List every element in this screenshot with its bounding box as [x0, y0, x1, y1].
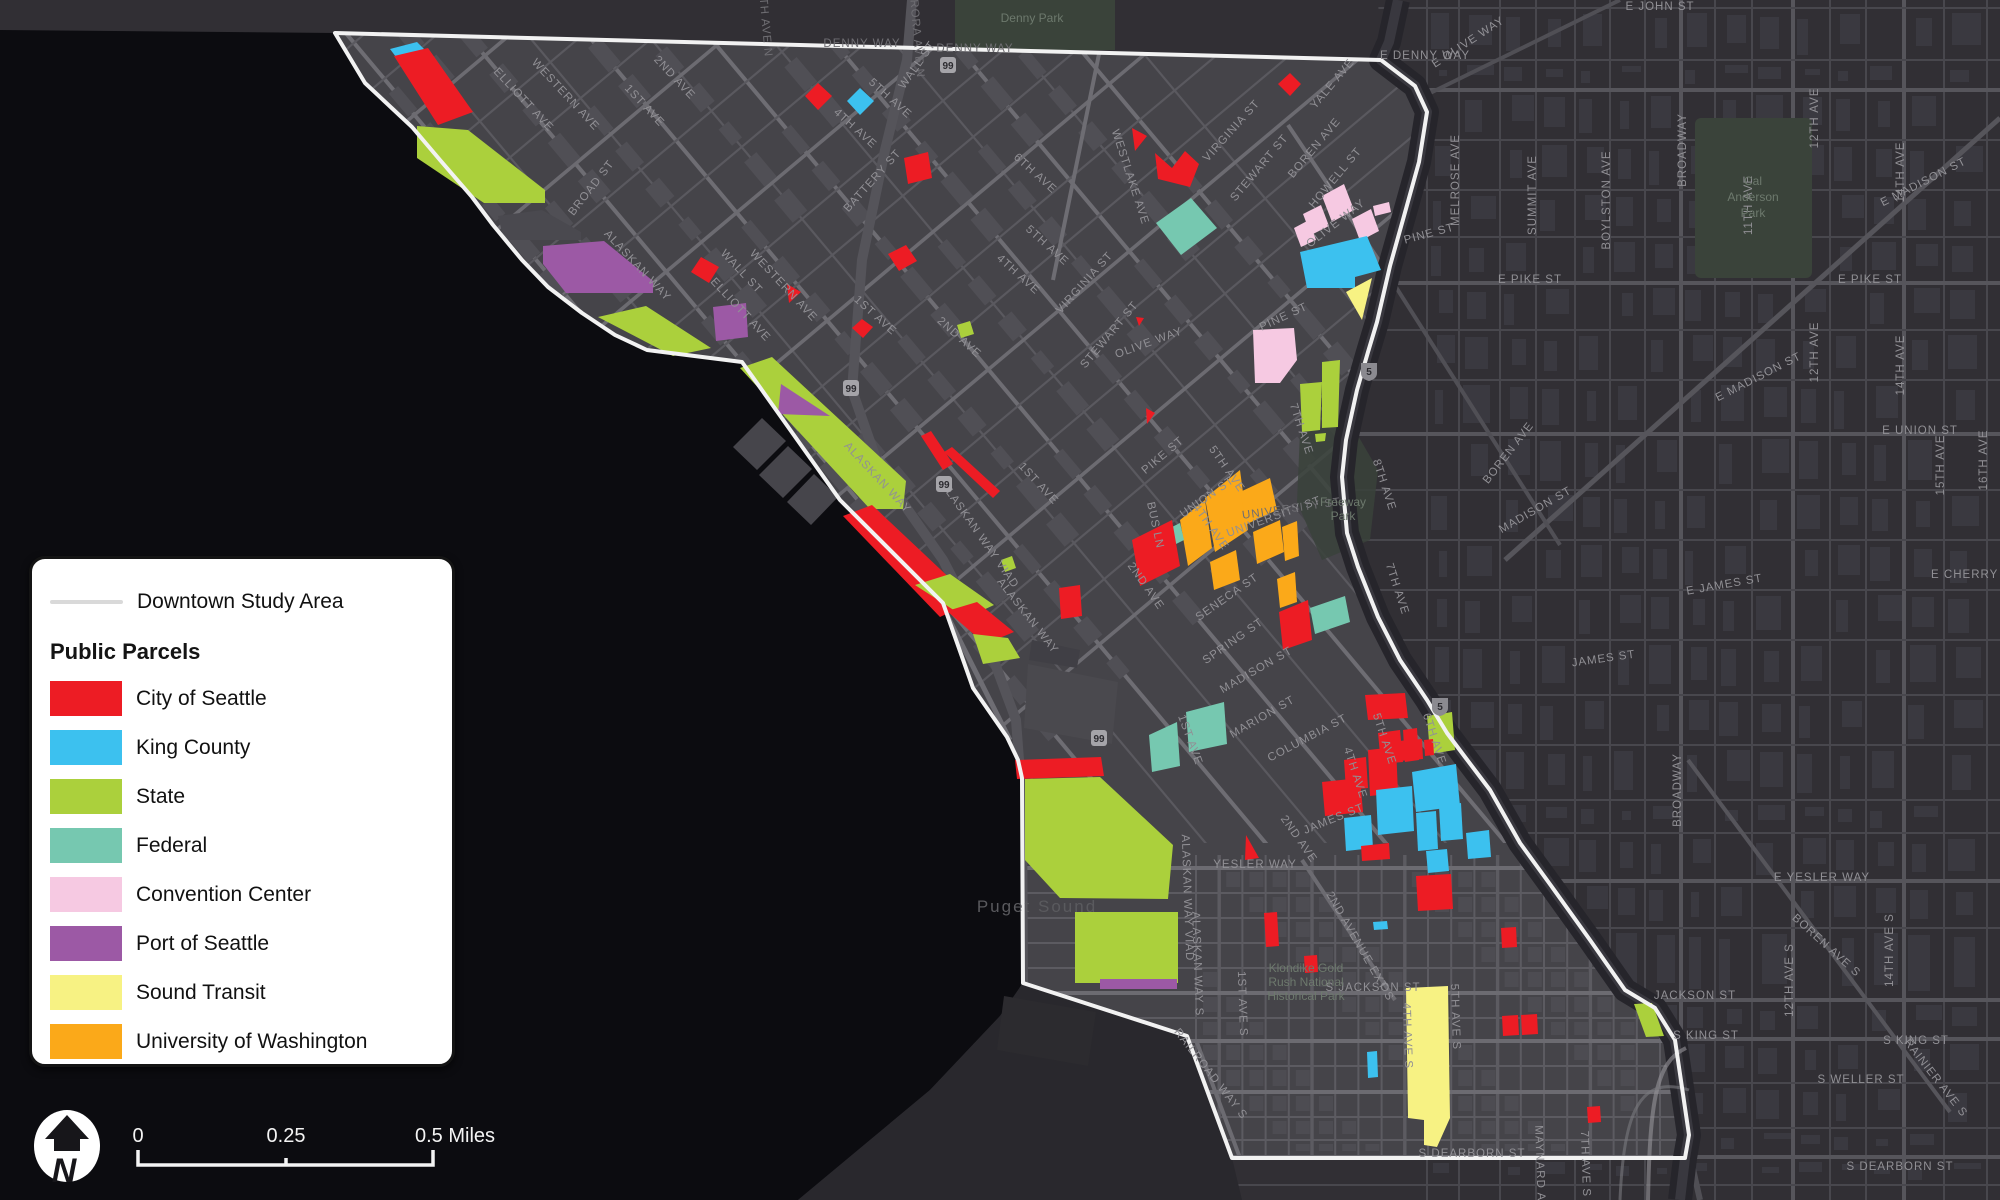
legend-items: City of SeattleKing CountyStateFederalCo… [50, 674, 436, 1066]
park-label: Park [1741, 206, 1767, 220]
interstate-5-shield-icon: 5 [1432, 698, 1448, 716]
legend-swatch-kc [50, 730, 122, 765]
svg-text:0.5 Miles: 0.5 Miles [415, 1125, 495, 1147]
street-label: 7TH AVE S [1578, 1131, 1592, 1198]
park-label: Anderson [1727, 190, 1778, 204]
legend-item-cc: Convention Center [50, 870, 436, 919]
street-label: E YESLER WAY [1774, 872, 1870, 884]
street-label: S DEARBORN ST [1847, 1161, 1954, 1173]
parcel-kc[interactable] [1426, 849, 1449, 873]
legend-swatch-st [50, 779, 122, 814]
street-label: DENNY WAY [936, 43, 1013, 55]
parcel-city[interactable] [1361, 843, 1390, 861]
street-label: 15TH AVE [1935, 435, 1947, 496]
street-label: 1ST AVE S [1235, 971, 1249, 1037]
legend-swatch-city [50, 681, 122, 716]
legend-item-port: Port of Seattle [50, 919, 436, 968]
street-label: 14TH AVE [1895, 335, 1907, 396]
svg-text:5: 5 [1437, 702, 1443, 713]
parcel-kc[interactable] [1439, 803, 1463, 841]
study-area-line-swatch [50, 600, 123, 604]
park-label: Denny Park [1001, 11, 1065, 25]
legend-item-label: Convention Center [136, 883, 311, 907]
street-label: S WELLER ST [1817, 1074, 1904, 1086]
street-label: 12TH AVE [1809, 88, 1821, 149]
parcel-kc[interactable] [1466, 830, 1491, 859]
legend-item-label: State [136, 785, 185, 809]
parcel-city[interactable] [1398, 739, 1423, 761]
legend-item-label: City of Seattle [136, 687, 267, 711]
scale-bar: 0 0.25 0.5 Miles [110, 1110, 670, 1190]
street-label: BROADWAY [1677, 113, 1689, 187]
street-label: E PIKE ST [1838, 274, 1902, 286]
street-label: E UNION ST [1882, 425, 1958, 437]
street-label: YESLER WAY [1213, 859, 1297, 871]
parcel-kc[interactable] [1416, 811, 1438, 851]
street-label: E JOHN ST [1625, 1, 1694, 13]
legend-item-stx: Sound Transit [50, 968, 436, 1017]
street-label: 16TH AVE [1978, 430, 1990, 491]
svg-text:99: 99 [1093, 734, 1105, 745]
sr-99-shield-icon: 99 [1091, 730, 1107, 746]
park-label: Rush National [1268, 975, 1343, 989]
parcel-st[interactable] [1315, 433, 1326, 442]
svg-text:0: 0 [132, 1125, 143, 1147]
parcel-city[interactable] [1015, 757, 1104, 779]
parcel-st[interactable] [1075, 912, 1178, 983]
legend-swatch-fed [50, 828, 122, 863]
legend-item-label: University of Washington [136, 1030, 367, 1054]
legend-item-kc: King County [50, 723, 436, 772]
street-label: S KING ST [1673, 1030, 1739, 1042]
study-area-label: Downtown Study Area [137, 590, 344, 614]
legend-swatch-stx [50, 975, 122, 1010]
legend-swatch-cc [50, 877, 122, 912]
street-label: E PIKE ST [1498, 274, 1562, 286]
parcel-st[interactable] [1322, 360, 1340, 428]
park-label: Cal [1744, 174, 1762, 188]
parcel-city[interactable] [1059, 585, 1082, 619]
svg-text:99: 99 [845, 384, 857, 395]
sr-99-shield-icon: 99 [936, 476, 952, 492]
street-label: 5TH AVE S [1448, 984, 1462, 1051]
legend-study-area-row: Downtown Study Area [50, 577, 436, 626]
legend-item-label: Sound Transit [136, 981, 266, 1005]
legend-panel: Downtown Study Area Public Parcels City … [29, 556, 455, 1067]
street-label: SUMMIT AVE [1527, 155, 1539, 235]
svg-text:5: 5 [1366, 367, 1372, 378]
street-label: MELROSE AVE [1450, 134, 1462, 226]
parcel-city[interactable] [1501, 927, 1517, 948]
parcel-city[interactable] [1587, 1106, 1601, 1123]
park-label: Freeway [1320, 495, 1366, 509]
interstate-5-shield-icon: 5 [1361, 363, 1377, 381]
legend-item-label: King County [136, 736, 250, 760]
parcel-city[interactable] [1416, 874, 1453, 911]
street-label: BOYLSTON AVE [1601, 150, 1613, 249]
legend-item-label: Port of Seattle [136, 932, 269, 956]
sr-99-shield-icon: 99 [843, 380, 859, 396]
sr-99-shield-icon: 99 [940, 57, 956, 73]
svg-text:0.25: 0.25 [267, 1125, 306, 1147]
park-label: Historical Park [1267, 989, 1345, 1003]
legend-header: Public Parcels [50, 632, 436, 672]
parcel-kc[interactable] [1373, 921, 1388, 930]
street-label: JACKSON ST [1654, 990, 1736, 1002]
street-label: 12TH AVE [1809, 322, 1821, 383]
parcel-city[interactable] [1502, 1015, 1519, 1036]
legend-item-label: Federal [136, 834, 207, 858]
street-label: 4TH AVE S [1400, 1003, 1414, 1070]
street-label: 14TH AVE S [1884, 913, 1896, 987]
legend-item-city: City of Seattle [50, 674, 436, 723]
parcel-city[interactable] [1264, 912, 1279, 947]
legend-item-uw: University of Washington [50, 1017, 436, 1066]
street-label: S DEARBORN ST [1419, 1148, 1526, 1160]
parcel-kc[interactable] [1367, 1051, 1378, 1078]
legend-item-fed: Federal [50, 821, 436, 870]
legend-item-st: State [50, 772, 436, 821]
park-label: Klondike Gold [1269, 961, 1344, 975]
parcel-uw[interactable] [1282, 521, 1299, 561]
parcel-city[interactable] [1521, 1014, 1538, 1035]
parcel-kc[interactable] [1376, 786, 1414, 835]
svg-text:99: 99 [942, 61, 954, 72]
svg-text:99: 99 [938, 480, 950, 491]
legend-swatch-uw [50, 1024, 122, 1059]
street-label: E CHERRY ST [1931, 569, 2000, 581]
street-label: MAYNARD AVE S [1532, 1125, 1548, 1200]
street-label: DENNY WAY [823, 38, 900, 50]
park-label: Park [1331, 509, 1357, 523]
street-label: 12TH AVE S [1784, 943, 1796, 1017]
water-label: Puget Sound [977, 897, 1097, 916]
svg-text:N: N [52, 1152, 78, 1190]
legend-swatch-port [50, 926, 122, 961]
street-label: BROADWAY [1672, 753, 1684, 827]
parcel-port[interactable] [1100, 979, 1177, 989]
map-page: DENNY WAYDENNY WAYE DENNY WAYE JOHN STAU… [0, 0, 2000, 1200]
